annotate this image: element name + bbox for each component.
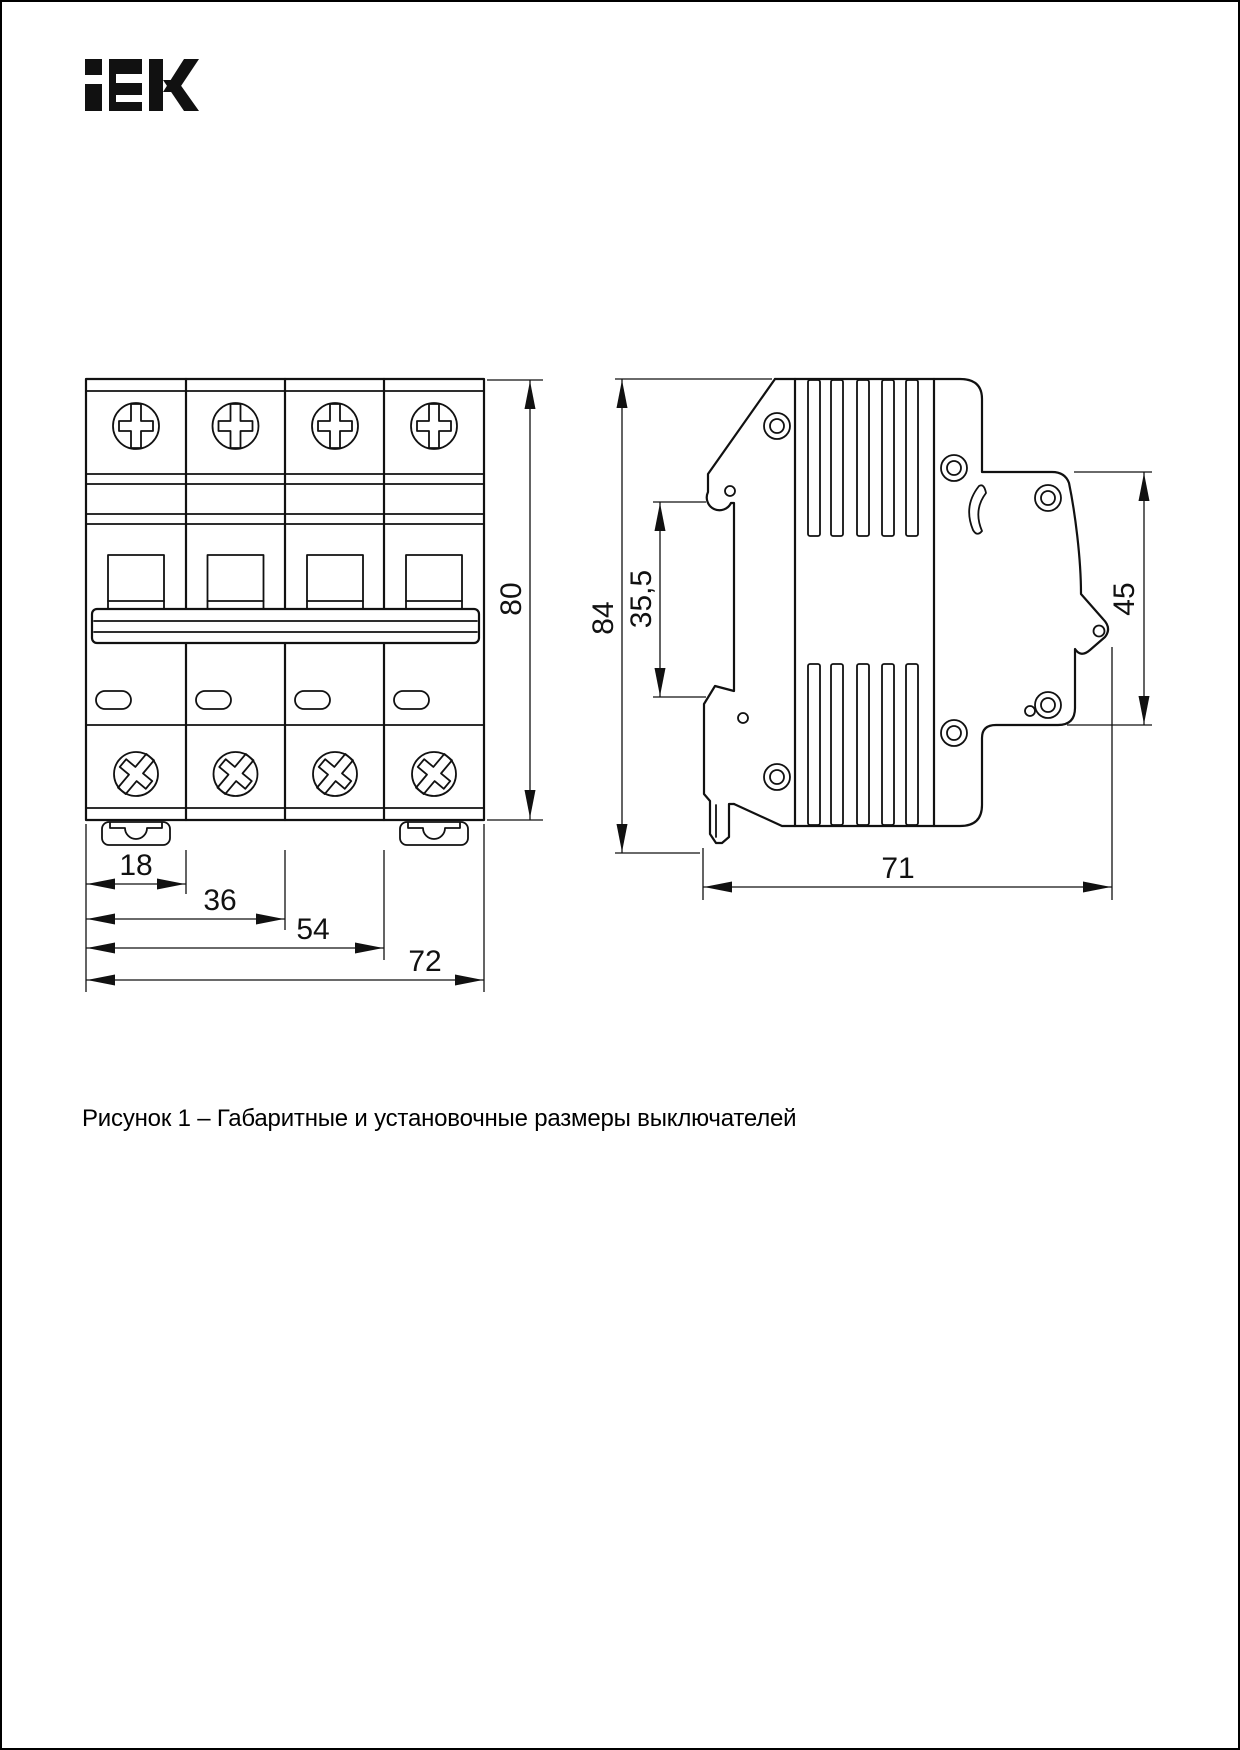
vent-panel-edges (795, 379, 934, 826)
dim-label-54: 54 (296, 913, 329, 946)
dim-label-36: 36 (203, 884, 236, 917)
dim-35-5: 35,5 (625, 502, 706, 697)
figure-caption: Рисунок 1 – Габаритные и установочные ра… (82, 1105, 796, 1133)
dim-label-71: 71 (881, 852, 914, 885)
iek-logo (85, 59, 199, 111)
dim-label-35-5: 35,5 (625, 570, 658, 628)
logo-letter-i (85, 59, 102, 111)
datasheet-page: 80 18 36 54 72 (0, 0, 1240, 1750)
curved-slot (969, 485, 986, 533)
figure-drawing: 80 18 36 54 72 (2, 2, 1240, 1750)
pivot-pins (725, 486, 1105, 723)
vent-slots-bottom (808, 664, 918, 825)
dim-label-45: 45 (1108, 582, 1141, 615)
front-view-drawing: 80 18 36 54 72 (86, 379, 543, 992)
dim-label-18: 18 (119, 849, 152, 882)
dim-45: 45 (1067, 472, 1152, 725)
dim-84: 84 (587, 379, 772, 853)
logo-letter-k (149, 59, 199, 111)
logo-letter-e (109, 59, 142, 111)
dim-widths: 18 36 54 72 (86, 824, 484, 992)
toggle-link-bar (92, 609, 479, 643)
breaker-side-body (734, 379, 1108, 826)
side-view-drawing: 84 35,5 45 71 (587, 379, 1152, 900)
dim-label-84: 84 (587, 601, 620, 634)
dim-label-72: 72 (408, 945, 441, 978)
marking-windows (96, 691, 429, 709)
dim-80: 80 (487, 380, 543, 820)
vent-slots-top (808, 380, 918, 536)
dim-label-80: 80 (495, 582, 528, 615)
din-clips-front (102, 822, 468, 845)
